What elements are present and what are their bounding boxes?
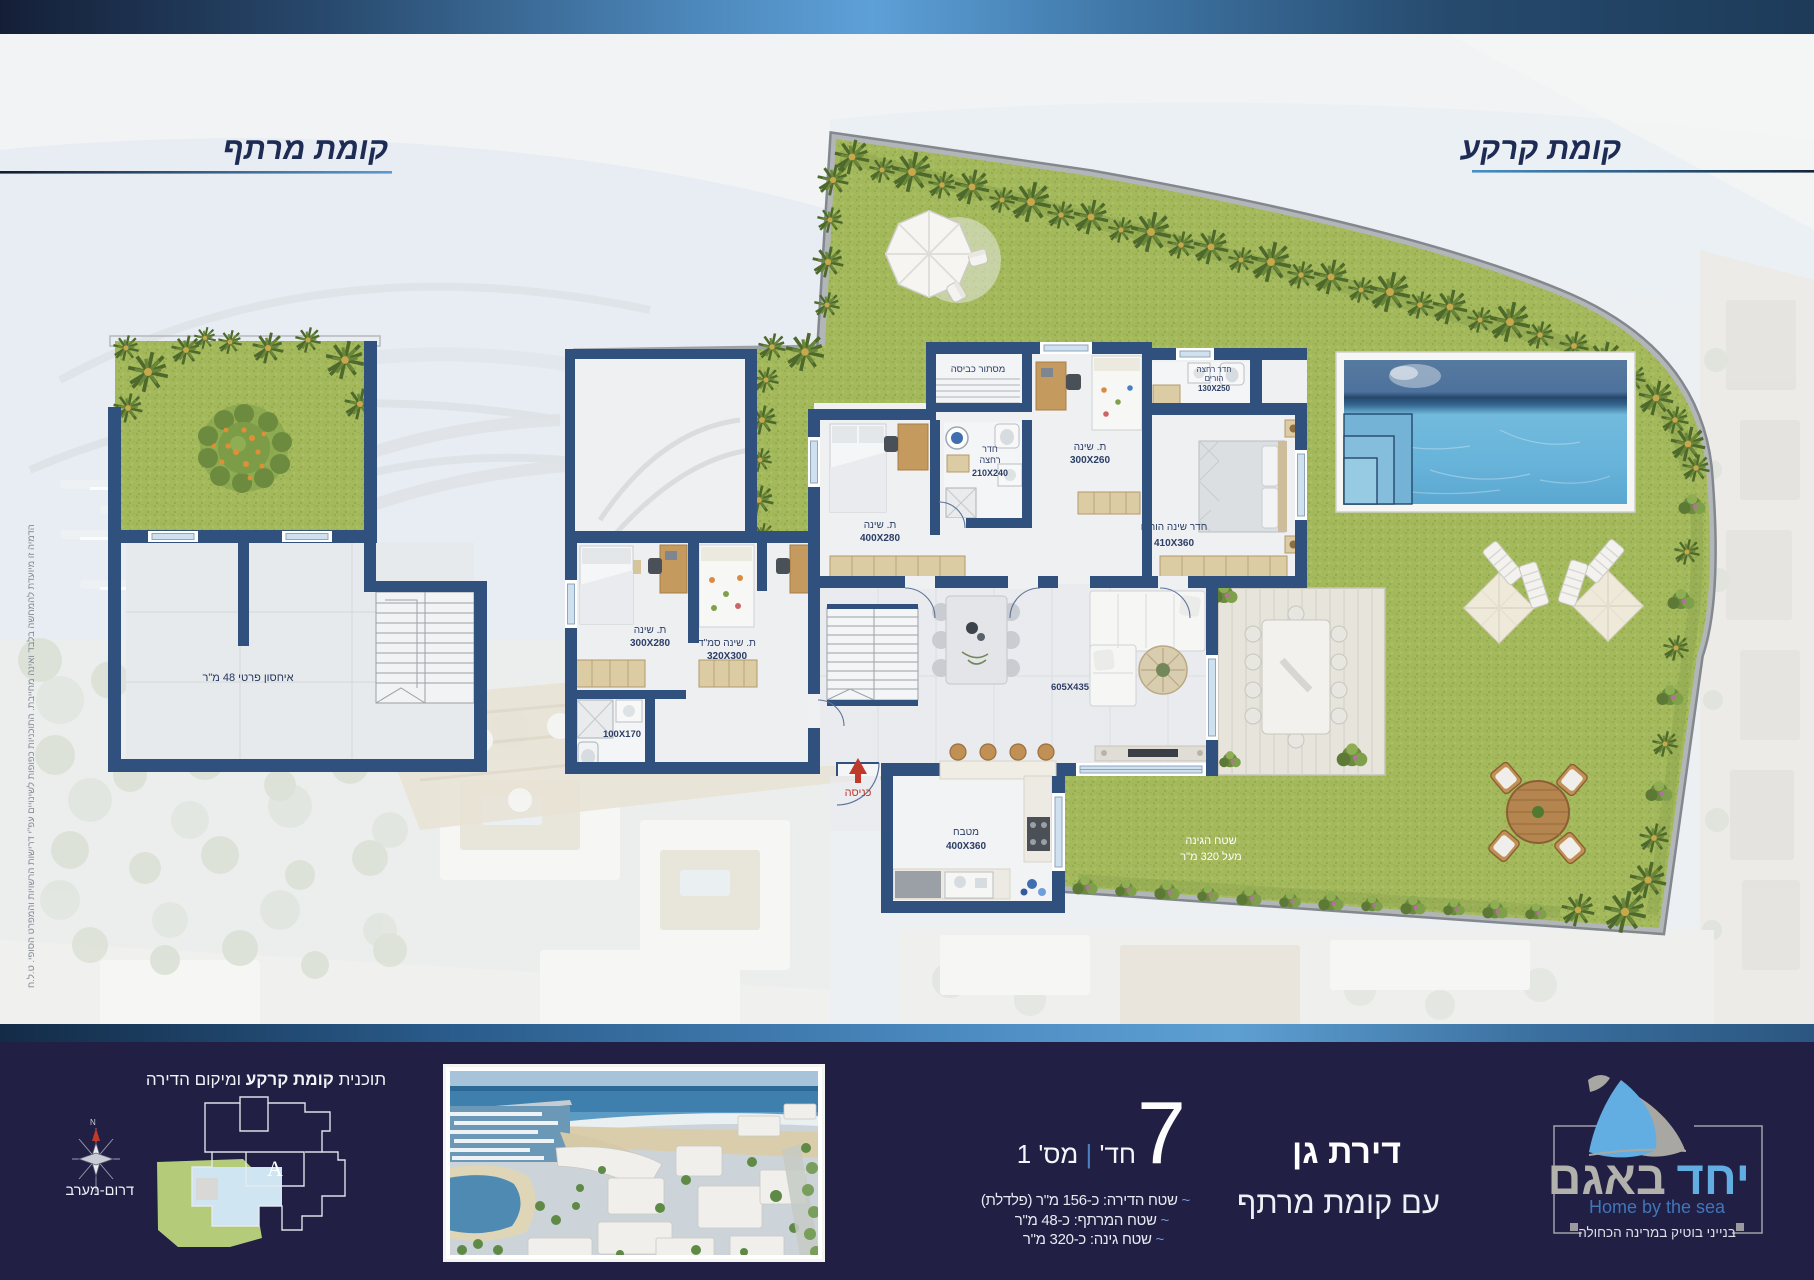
svg-text:הדמיה זו מיועדת להמחשה בלבד וא: הדמיה זו מיועדת להמחשה בלבד ואינה מחייבת… (25, 524, 37, 988)
svg-text:רחצה: רחצה (979, 455, 1000, 465)
svg-text:חדר: חדר (982, 444, 998, 454)
svg-text:130X250: 130X250 (1198, 384, 1231, 393)
svg-text:N: N (90, 1118, 96, 1127)
svg-text:~ שטח גינה: כ-320 מ"ר: ~ שטח גינה: כ-320 מ"ר (1023, 1231, 1165, 1248)
svg-text:100X170: 100X170 (603, 729, 641, 740)
svg-text:ת. שינה: ת. שינה (634, 625, 667, 636)
svg-text:קומת מרתף: קומת מרתף (220, 131, 392, 166)
svg-text:210X240: 210X240 (972, 468, 1008, 478)
svg-text:דירת גן: דירת גן (1292, 1133, 1401, 1171)
svg-text:קומת קרקע: קומת קרקע (1458, 131, 1625, 166)
svg-text:~ שטח המרתף: כ-48 מ"ר: ~ שטח המרתף: כ-48 מ"ר (1015, 1212, 1170, 1229)
svg-text:605X435: 605X435 (1051, 682, 1090, 693)
svg-text:מטבח: מטבח (953, 827, 979, 838)
svg-text:ת. שינה: ת. שינה (1074, 442, 1107, 453)
svg-text:ת. שינה סמ"ד: ת. שינה סמ"ד (698, 638, 756, 649)
svg-text:410X360: 410X360 (1154, 538, 1194, 549)
svg-text:Home by the sea: Home by the sea (1589, 1197, 1726, 1217)
svg-text:עם קומת מרתף: עם קומת מרתף (1237, 1185, 1440, 1220)
svg-text:A: A (267, 1156, 283, 1181)
svg-text:400X360: 400X360 (946, 841, 986, 852)
svg-text:מסתור כביסה: מסתור כביסה (951, 364, 1006, 375)
svg-text:300X280: 300X280 (630, 638, 670, 649)
svg-text:7: 7 (1137, 1083, 1186, 1182)
svg-text:בנייני בוטיק במרינה הכחולה: בנייני בוטיק במרינה הכחולה (1578, 1225, 1736, 1240)
svg-text:איחסון פרטי 48 מ"ר: איחסון פרטי 48 מ"ר (202, 672, 293, 684)
svg-text:דרום-מערב: דרום-מערב (66, 1183, 134, 1199)
svg-text:תוכנית קומת קרקע ומיקום הדירה: תוכנית קומת קרקע ומיקום הדירה (146, 1070, 386, 1089)
svg-text:הורים: הורים (1205, 374, 1224, 383)
svg-text:כניסה: כניסה (845, 787, 872, 799)
svg-text:ת. שינה: ת. שינה (864, 520, 897, 531)
svg-text:400X280: 400X280 (860, 533, 900, 544)
svg-text:שטח הגינה: שטח הגינה (1185, 835, 1236, 847)
svg-text:חד' | מס' 1: חד' | מס' 1 (1017, 1139, 1136, 1169)
svg-text:~ שטח הדירה: כ-156 מ"ר (פלדלת: ~ שטח הדירה: כ-156 מ"ר (פלדלת) (981, 1192, 1191, 1209)
svg-text:מעל 320 מ"ר: מעל 320 מ"ר (1180, 850, 1242, 863)
svg-text:חדר רחצה: חדר רחצה (1197, 365, 1232, 374)
svg-text:300X260: 300X260 (1070, 455, 1110, 466)
